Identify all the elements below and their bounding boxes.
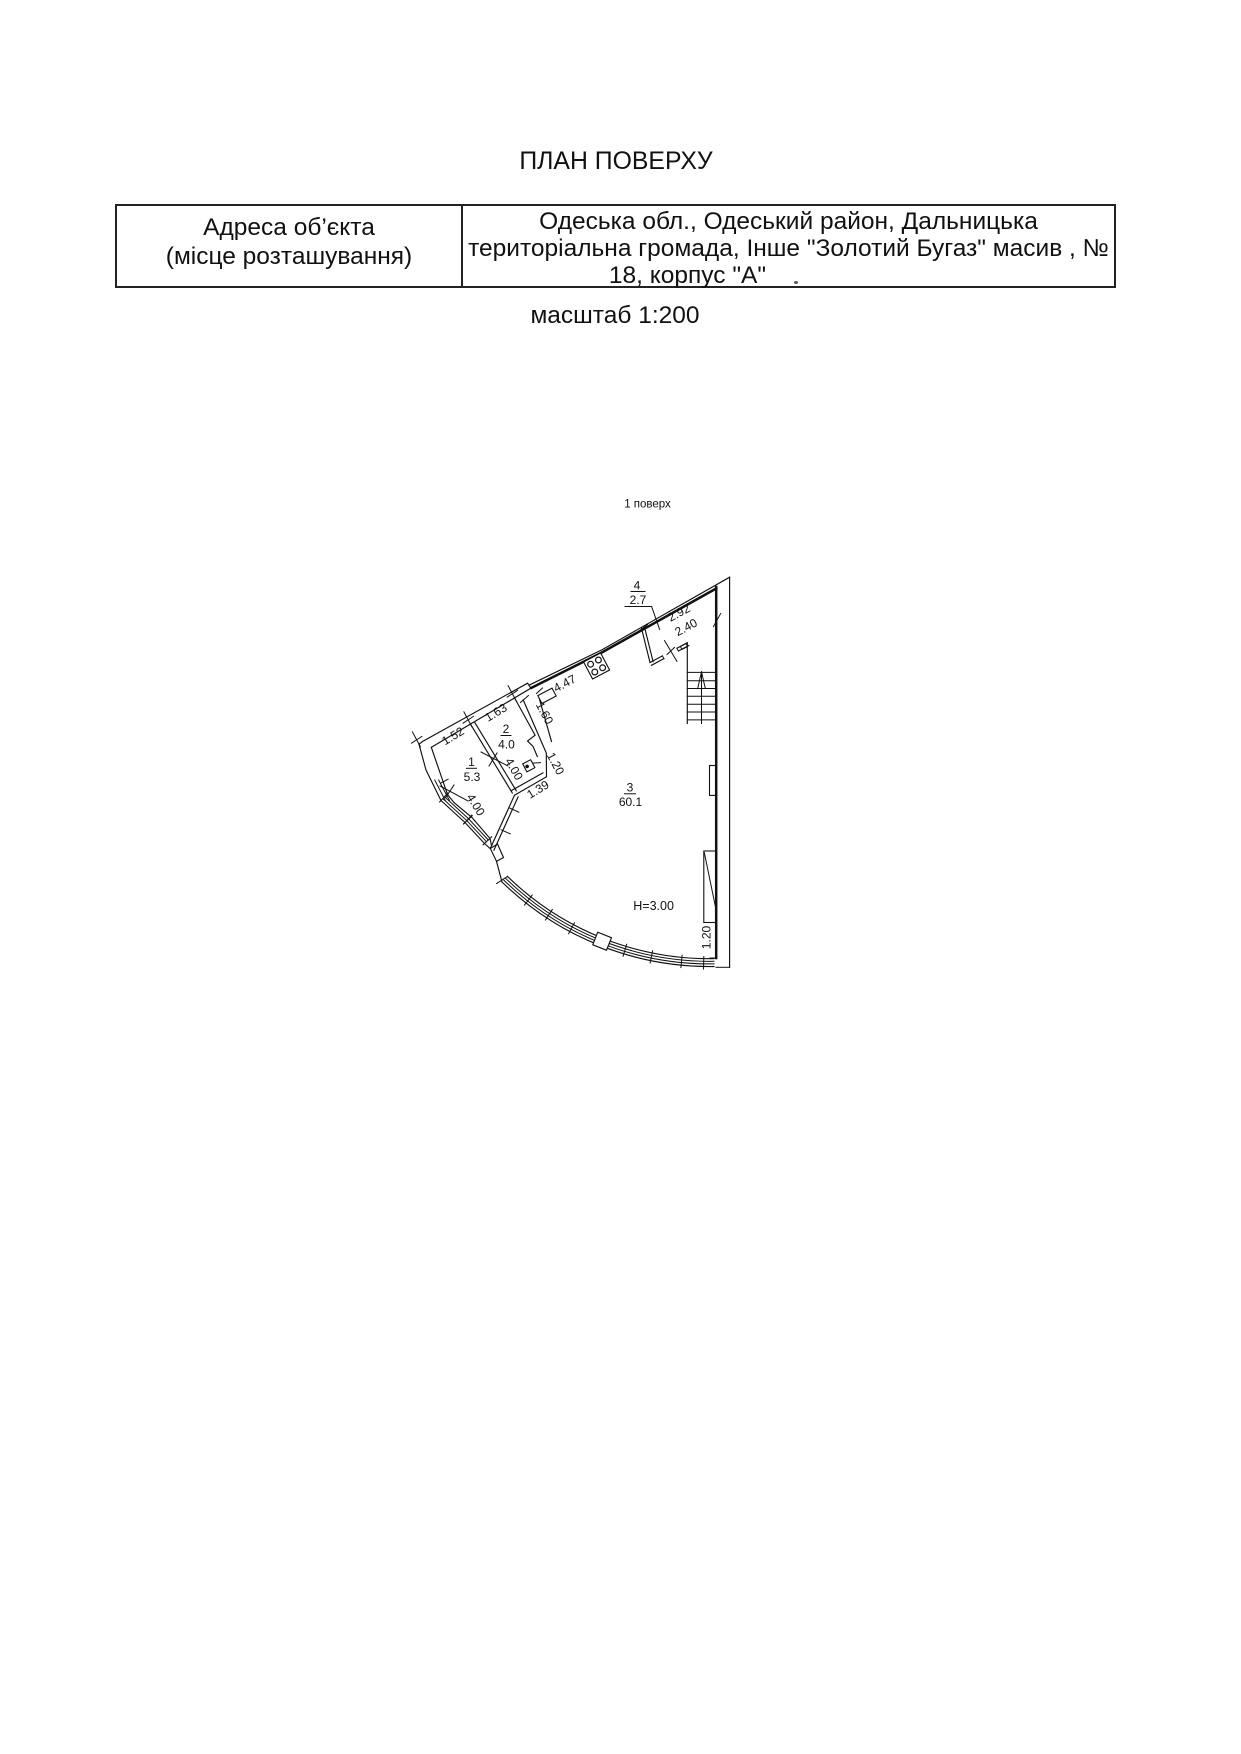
svg-text:H=3.00: H=3.00	[633, 899, 674, 913]
svg-text:1 поверх: 1 поверх	[624, 499, 671, 511]
svg-text:4.0: 4.0	[498, 738, 515, 752]
svg-text:1.60: 1.60	[533, 700, 556, 727]
svg-text:4: 4	[634, 579, 641, 593]
svg-text:1.52: 1.52	[439, 724, 467, 748]
svg-text:1.20: 1.20	[544, 750, 567, 777]
svg-text:1: 1	[468, 755, 475, 769]
svg-text:3: 3	[627, 781, 634, 795]
svg-text:1.20: 1.20	[700, 925, 714, 949]
svg-text:5.3: 5.3	[464, 770, 481, 784]
svg-text:60.1: 60.1	[619, 795, 643, 809]
svg-text:2: 2	[503, 722, 510, 736]
svg-text:4.00: 4.00	[464, 791, 488, 819]
svg-text:1.63: 1.63	[482, 700, 510, 724]
svg-text:4.00: 4.00	[502, 755, 526, 783]
svg-text:2.7: 2.7	[630, 593, 647, 607]
